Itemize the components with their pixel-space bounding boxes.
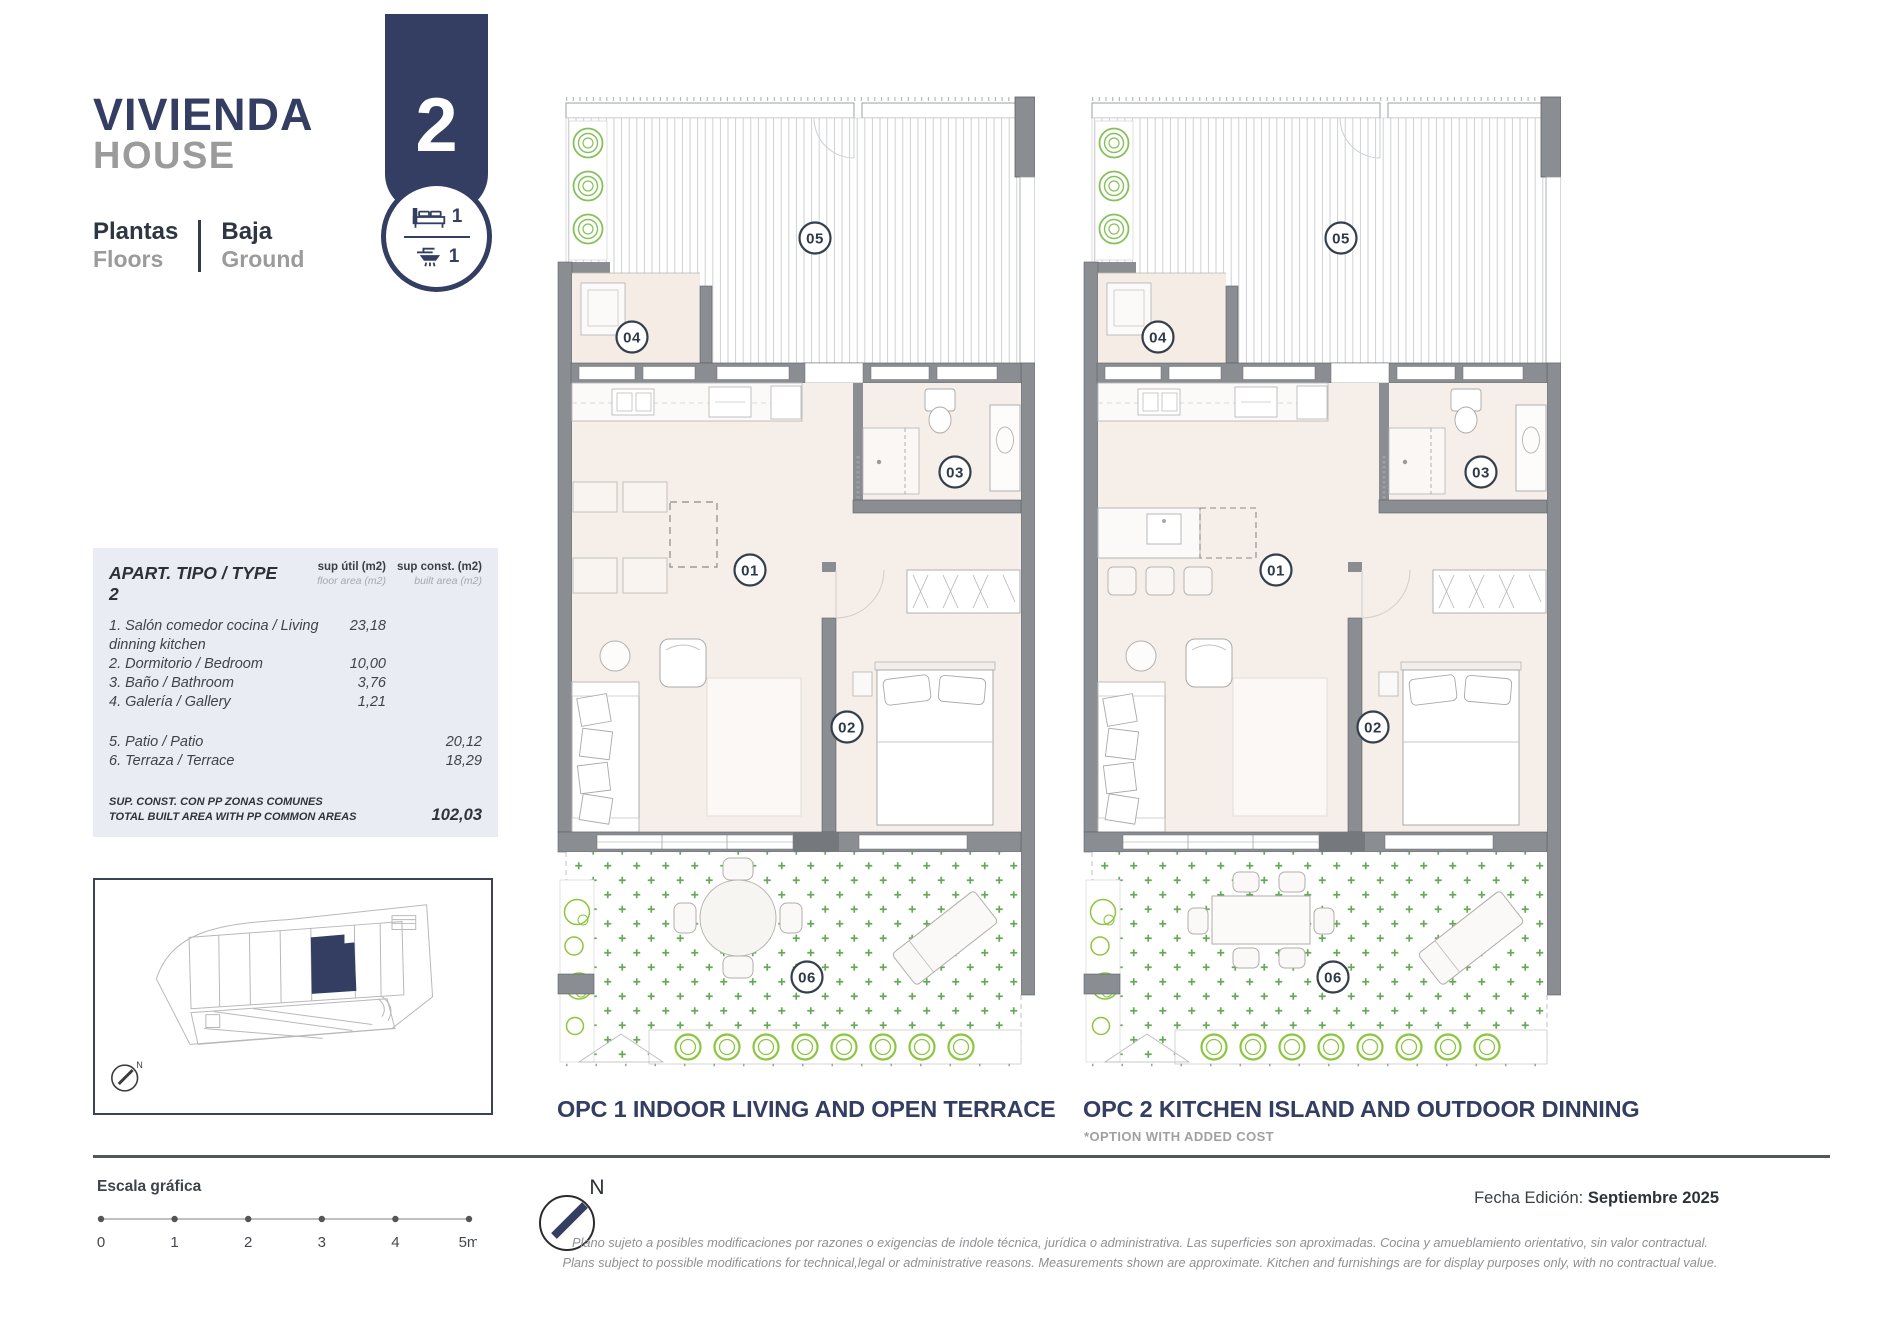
unit-amenities: 1 1: [386, 186, 487, 287]
scale-tick: 4: [391, 1234, 399, 1251]
bedrooms-count: 1: [452, 206, 463, 228]
bathrooms-count: 1: [449, 246, 460, 268]
floor-info: Plantas Floors Baja Ground: [93, 218, 304, 272]
footer-divider: [93, 1155, 1830, 1158]
col-header-util: sup útil (m2) floor area (m2): [298, 561, 386, 587]
title-english: HOUSE: [93, 137, 314, 177]
scale-tick: 5m: [459, 1234, 477, 1251]
site-key-plan-drawing: N: [95, 880, 491, 1115]
floor-plan-sheet: VIVIENDA HOUSE Plantas Floors Baja Groun…: [0, 0, 1900, 1341]
table-row: 6. Terraza / Terrace18,29: [109, 752, 482, 771]
room-label-gallery: 04: [623, 329, 641, 346]
room-label-living: 01: [741, 562, 759, 579]
floor-plan-opc1: 05 04 03 01 02 06: [557, 90, 1035, 1070]
edition-date-value: Septiembre 2025: [1588, 1189, 1719, 1207]
floors-label-es: Plantas: [93, 218, 178, 246]
legal-disclaimer-es: Plano sujeto a posibles modificaciones p…: [560, 1233, 1720, 1253]
opc2-caption: OPC 2 KITCHEN ISLAND AND OUTDOOR DINNING: [1083, 1096, 1639, 1123]
highlighted-unit: [311, 934, 357, 993]
svg-text:N: N: [589, 1176, 604, 1199]
table-total-row: SUP. CONST. CON PP ZONAS COMUNES TOTAL B…: [109, 795, 482, 825]
scale-tick: 3: [318, 1234, 326, 1251]
table-row: 3. Baño / Bathroom3,76: [109, 674, 482, 693]
area-table-title: APART. TIPO / TYPE 2: [109, 561, 290, 605]
unit-badge: 2 1: [385, 14, 488, 286]
floors-label-en: Floors: [93, 246, 178, 272]
scale-bar: 0 1 2 3 4 5m: [95, 1205, 477, 1260]
total-built-area: 102,03: [394, 806, 482, 825]
room-label-patio: 05: [1332, 230, 1350, 247]
table-row: 4. Galería / Gallery1,21: [109, 693, 482, 712]
room-label-bedroom: 02: [838, 719, 856, 736]
title-spanish: VIVIENDA: [93, 92, 314, 137]
scale-tick: 0: [97, 1234, 105, 1251]
room-label-bathroom: 03: [1472, 464, 1490, 481]
floor-value-en: Ground: [221, 246, 304, 272]
legal-disclaimer-en: Plans subject to possible modifications …: [560, 1253, 1720, 1273]
table-row: 1. Salón comedor cocina / Living dinning…: [109, 617, 482, 655]
site-key-plan: N: [93, 878, 493, 1115]
scale-tick: 2: [244, 1234, 252, 1251]
floor-value-es: Baja: [221, 218, 304, 246]
scale-tick: 1: [170, 1234, 178, 1251]
scale-bar-label: Escala gráfica: [97, 1178, 201, 1196]
opc1-caption: OPC 1 INDOOR LIVING AND OPEN TERRACE: [557, 1096, 1035, 1123]
edition-date-label: Fecha Edición:: [1474, 1189, 1583, 1207]
room-label-terrace: 06: [798, 969, 816, 986]
unit-number: 2: [385, 88, 488, 164]
area-table: APART. TIPO / TYPE 2 sup útil (m2) floor…: [93, 548, 498, 837]
bed-icon: [411, 205, 447, 229]
shower-icon: [414, 245, 444, 269]
floor-plan-opc2: 05 04 03 01 02 06: [1083, 90, 1561, 1070]
room-label-bedroom: 02: [1364, 719, 1382, 736]
opc2-cost-note: *OPTION WITH ADDED COST: [1084, 1129, 1274, 1144]
svg-text:N: N: [136, 1060, 142, 1070]
keyplan-north-icon: N: [112, 1060, 143, 1091]
table-row: 2. Dormitorio / Bedroom10,00: [109, 655, 482, 674]
room-label-living: 01: [1267, 562, 1285, 579]
room-label-bathroom: 03: [946, 464, 964, 481]
room-label-terrace: 06: [1324, 969, 1342, 986]
table-row: 5. Patio / Patio20,12: [109, 733, 482, 752]
room-label-patio: 05: [806, 230, 824, 247]
room-label-gallery: 04: [1149, 329, 1167, 346]
page-title: VIVIENDA HOUSE: [93, 92, 314, 177]
col-header-const: sup const. (m2) built area (m2): [394, 561, 482, 587]
floor-divider: [198, 220, 201, 272]
edition-date: Fecha Edición: Septiembre 2025: [1474, 1189, 1719, 1208]
legal-disclaimer: Plano sujeto a posibles modificaciones p…: [560, 1233, 1720, 1273]
